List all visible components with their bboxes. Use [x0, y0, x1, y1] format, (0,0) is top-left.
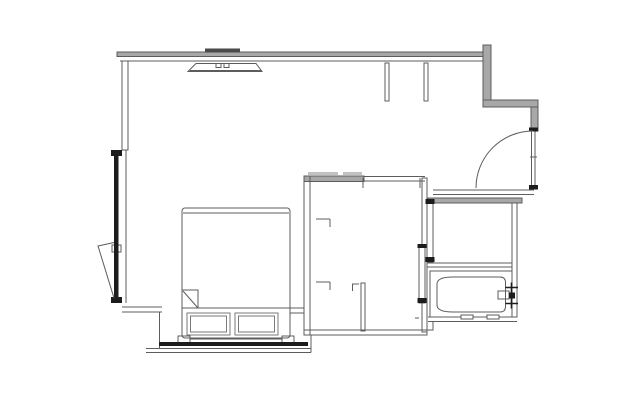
duvet-fold-diagonal: [183, 291, 198, 308]
headboard-wall-bar: [159, 342, 308, 346]
slide-cap-2b: [418, 298, 427, 303]
closet-top-wall-band: [304, 176, 364, 182]
entry-right-wall-band: [531, 107, 538, 131]
wall-stub-1: [385, 63, 389, 101]
slide-cap-1a: [426, 199, 435, 204]
bath-corner-step: [427, 322, 433, 330]
bath-right-wall: [512, 203, 517, 317]
slide-cap-1b: [426, 257, 435, 262]
bathtub-basin: [437, 277, 506, 312]
door-swing-arc: [476, 131, 533, 188]
faucet-hub: [509, 293, 515, 299]
closet-shelf-bar-1: [308, 172, 338, 175]
bathtub-spout: [498, 291, 509, 299]
window-bottom-cap: [111, 297, 122, 303]
door-hinge-bottom: [529, 185, 538, 190]
wall-stub-2: [424, 63, 428, 101]
faucet-handle-bottom: [506, 299, 519, 309]
sliding-door-panel-1: [427, 200, 433, 262]
floor-plan-drawing: [0, 0, 640, 400]
closet-divider-wall: [361, 283, 365, 331]
left-wall: [122, 61, 128, 150]
sliding-door-panel-2: [419, 245, 425, 303]
window-glass-bar: [114, 156, 119, 297]
pillow-2-inner: [239, 316, 275, 332]
bathtub-drain-tick-2: [487, 315, 499, 319]
closet-shelf-bar-2: [343, 172, 362, 175]
closet-left-wall: [304, 176, 310, 335]
ac-unit-vent-2: [224, 64, 229, 68]
ac-unit-vent-1: [216, 64, 221, 68]
entry-left-wall-band: [483, 45, 491, 107]
door-leaf: [532, 130, 536, 188]
ac-unit-wall-bar: [205, 49, 240, 53]
window-top-cap: [111, 150, 122, 156]
entry-top-wall-band: [483, 100, 538, 107]
headboard-foot-left: [178, 336, 190, 343]
bathroom-top-wall-band: [428, 198, 522, 203]
headboard-foot-right: [282, 336, 294, 343]
bed-frame: [182, 208, 290, 338]
floor-plan-canvas: [0, 0, 640, 400]
bathtub-drain-tick-1: [461, 315, 473, 319]
top-wall-band: [117, 52, 483, 57]
pillow-1-inner: [191, 316, 227, 332]
slide-cap-2a: [418, 244, 427, 248]
